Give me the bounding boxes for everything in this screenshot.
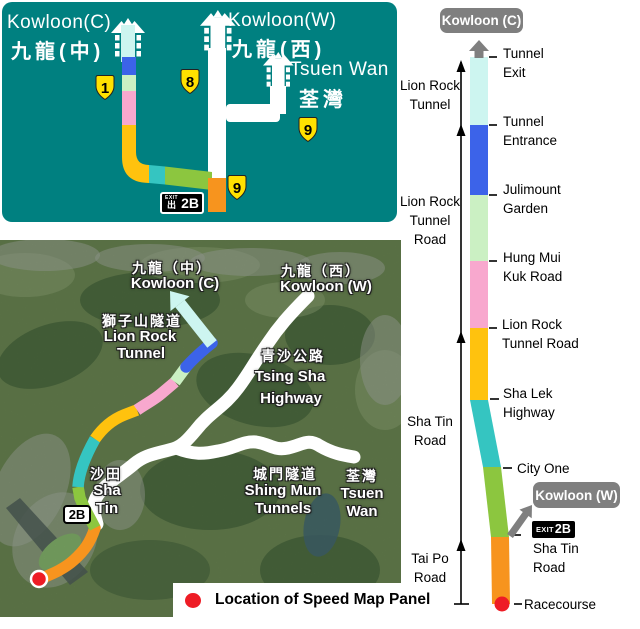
- exit-2b-badge: EXIT 出 2B: [160, 192, 204, 214]
- location-map-panel: 九龍（中） Kowloon (C) 獅子山隧道 Lion Rock Tunnel…: [0, 240, 401, 617]
- strip-segment-gold: [470, 328, 488, 400]
- map-label-tsing-sha-en1: Tsing Sha: [255, 368, 326, 385]
- segment-gold-bend: [122, 125, 149, 183]
- label-tsuen-wan-zh: 荃灣: [299, 83, 347, 112]
- map-label-kowloon-w-en: Kowloon (W): [280, 278, 372, 295]
- segment-light-green: [122, 75, 136, 91]
- speed-map-panel-location-dot: [31, 571, 47, 587]
- label-tai-po-road: Tai Po Road: [397, 549, 463, 587]
- label-racecourse: Racecourse: [524, 595, 596, 614]
- legend-red-dot-icon: [185, 593, 201, 608]
- map-label-kowloon-c-en: Kowloon (C): [131, 275, 219, 292]
- arrow-to-kowloon-w-icon: [507, 505, 532, 538]
- label-city-one: City One: [517, 459, 570, 478]
- label-julimount-garden: Julimount Garden: [503, 180, 561, 218]
- segment-tunnel-approach-blue: [122, 57, 136, 75]
- arrow-to-kowloon-c-icon: [469, 40, 489, 58]
- label-kowloon-w-zh: 九龍(西): [232, 33, 325, 62]
- tunnel-portal-icon-kowloon-c: [111, 18, 145, 62]
- racecourse-dot: [495, 597, 510, 612]
- segment-yellow-green: [165, 167, 212, 191]
- schematic-route-panel: 1 8 9 9 Kowloon(C) 九龍(中) Kowloon(W) 九龍(西…: [2, 2, 397, 222]
- satellite-map-graphic: [0, 240, 401, 617]
- route-9-shield-tsuen-wan: 9: [299, 118, 317, 142]
- label-lion-rock-tunnel-road-right: Lion Rock Tunnel Road: [502, 315, 579, 353]
- map-label-sha-tin-zh: 沙田: [90, 464, 122, 484]
- label-kowloon-w-en: Kowloon(W): [228, 10, 336, 32]
- label-sha-lek-highway: Sha Lek Highway: [503, 384, 555, 422]
- label-sha-tin-road-right: Sha Tin Road: [533, 539, 579, 577]
- strip-segment-teal: [470, 400, 501, 467]
- strip-segment-yellow-green: [483, 467, 509, 537]
- svg-text:9: 9: [233, 180, 241, 197]
- label-sha-tin-road-left: Sha Tin Road: [397, 412, 463, 450]
- svg-text:8: 8: [186, 74, 194, 91]
- speed-map-panel-location-diagram: { "colors": { "panel_teal": "#008080", "…: [0, 0, 640, 624]
- strip-exit-2b-badge: EXIT 2B: [532, 521, 575, 538]
- svg-text:9: 9: [304, 122, 312, 139]
- axis-arrowhead-1: [457, 60, 466, 72]
- map-label-tsuen-wan-en2: Wan: [346, 503, 377, 520]
- road-strip-diagram: Kowloon (C) Kowloon (W) EXIT 2B Lion Roc…: [400, 0, 640, 624]
- strip-segment-light-green: [470, 195, 488, 261]
- label-lion-rock-tunnel: Lion Rock Tunnel: [397, 76, 463, 114]
- route-8-shield: 8: [181, 70, 199, 94]
- map-label-shing-mun-en2: Tunnels: [255, 500, 311, 517]
- label-lion-rock-tunnel-road-left: Lion Rock Tunnel Road: [397, 192, 463, 249]
- map-label-lion-rock-en2: Tunnel: [117, 345, 165, 362]
- route-9-shield-bottom: 9: [228, 176, 246, 200]
- exit-character-stack: EXIT 出: [165, 196, 178, 210]
- label-tsuen-wan-en: Tsuen Wan: [290, 59, 389, 81]
- map-label-tsuen-wan-en1: Tsuen: [340, 485, 383, 502]
- svg-text:1: 1: [101, 80, 109, 97]
- map-label-tsing-sha-zh: 青沙公路: [261, 346, 325, 366]
- axis-arrowhead-3: [457, 331, 466, 343]
- strip-segment-blue: [470, 125, 488, 195]
- label-kowloon-c-en: Kowloon(C): [7, 12, 111, 34]
- route-1-shield: 1: [96, 76, 114, 100]
- map-label-lion-rock-en1: Lion Rock: [104, 328, 177, 345]
- map-label-shing-mun-en1: Shing Mun: [245, 482, 322, 499]
- map-label-tsuen-wan-zh: 荃灣: [346, 466, 378, 486]
- label-hung-mui-kuk-road: Hung Mui Kuk Road: [503, 248, 562, 286]
- map-exit-2b-badge: 2B: [63, 505, 91, 524]
- label-kowloon-c-zh: 九龍(中): [11, 35, 104, 64]
- segment-orange: [208, 178, 226, 212]
- map-label-sha-tin-en2: Tin: [96, 500, 118, 517]
- strip-segment-orange: [491, 537, 510, 604]
- map-label-shing-mun-zh: 城門隧道: [253, 464, 317, 484]
- map-label-tsing-sha-en2: Highway: [260, 390, 322, 407]
- strip-segment-lion-rock-tunnel: [470, 57, 488, 125]
- segment-pink: [122, 91, 136, 125]
- strip-segment-pink: [470, 261, 488, 328]
- axis-arrowhead-2: [457, 124, 466, 136]
- legend-box: Location of Speed Map Panel: [173, 583, 401, 617]
- segment-teal: [149, 165, 165, 185]
- legend-label: Location of Speed Map Panel: [215, 591, 430, 609]
- dest-badge-kowloon-w: Kowloon (W): [533, 482, 620, 508]
- map-label-sha-tin-en1: Sha: [93, 482, 121, 499]
- label-tunnel-exit: Tunnel Exit: [503, 44, 544, 82]
- kowloon-w-road: [208, 48, 226, 180]
- label-tunnel-entrance: Tunnel Entrance: [503, 112, 557, 150]
- dest-badge-kowloon-c: Kowloon (C): [440, 8, 523, 33]
